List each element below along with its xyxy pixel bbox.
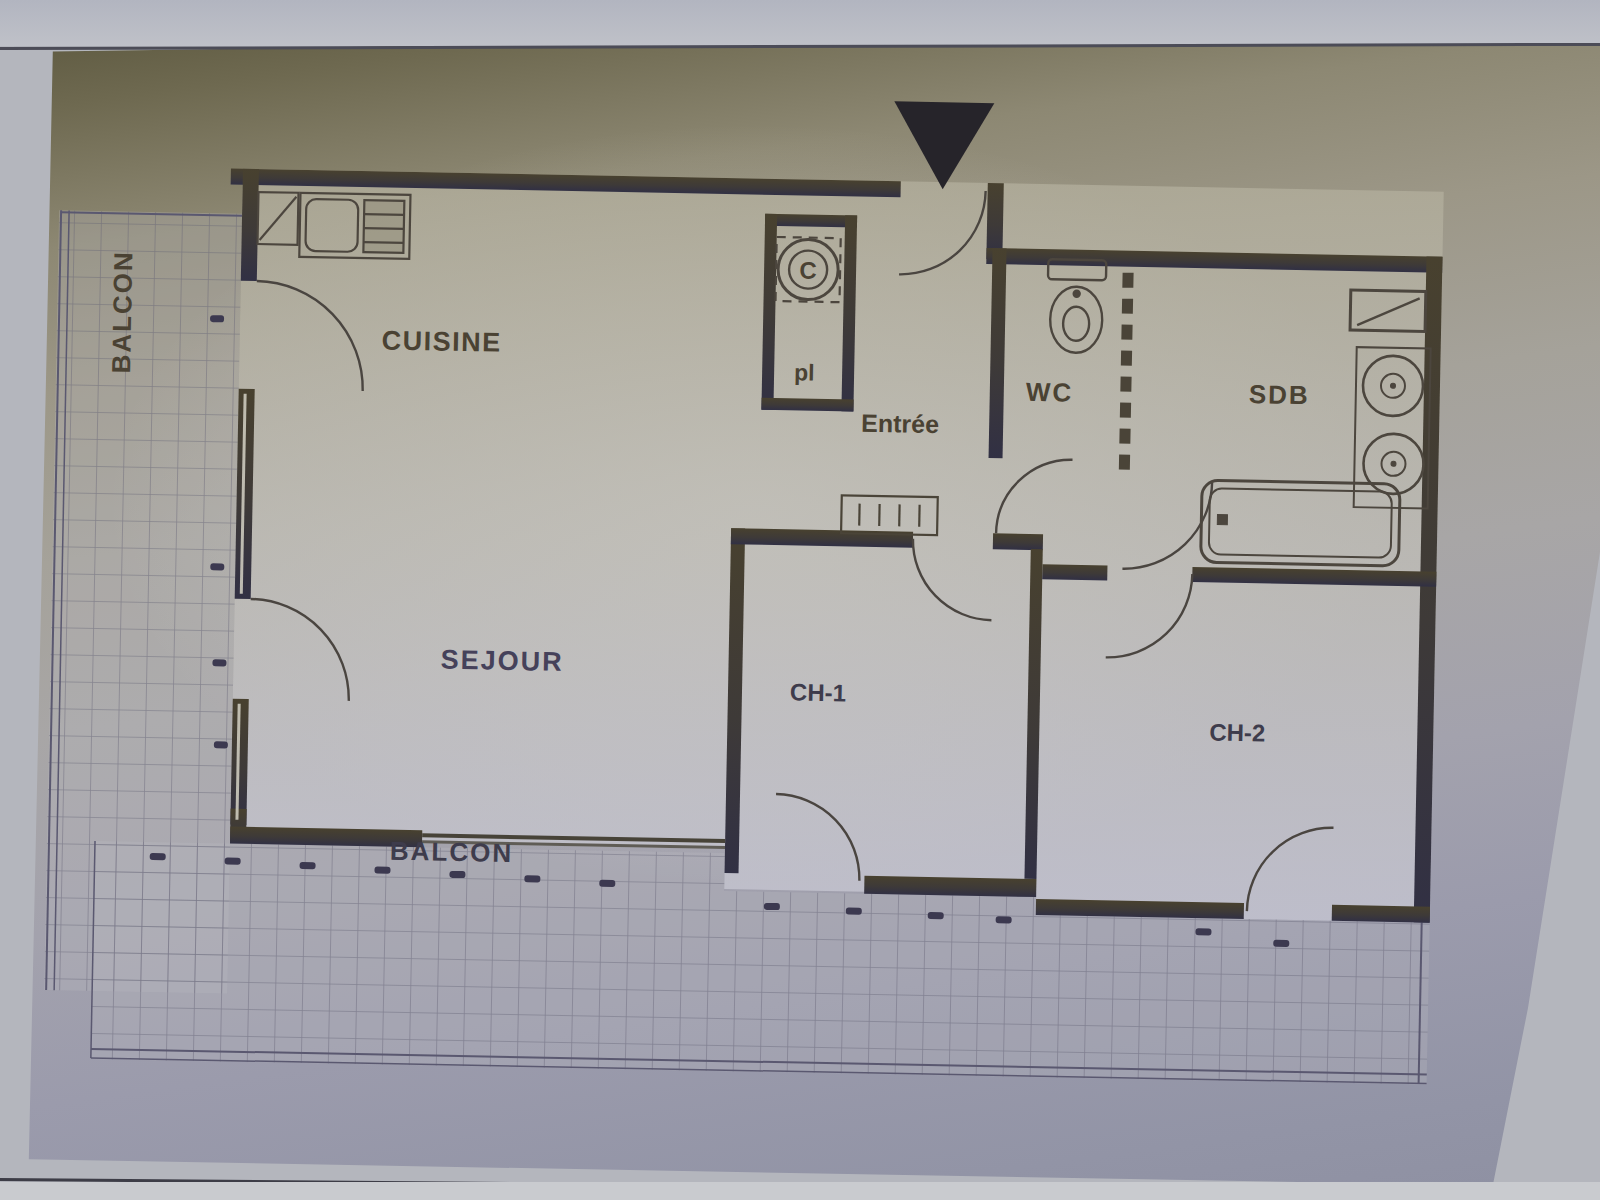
label-cuisine: CUISINE — [381, 325, 502, 357]
label-entree: Entrée — [861, 409, 939, 438]
water-heater-letter: C — [799, 256, 817, 283]
entrance-arrow-icon — [893, 101, 995, 190]
label-ch1: CH-1 — [790, 678, 847, 706]
label-sejour: SEJOUR — [440, 645, 564, 677]
label-balcon-bottom: BALCON — [390, 836, 514, 868]
floor-plan-drawing: C — [30, 60, 1470, 1137]
screen-photo-of-floor-plan: C — [0, 0, 1600, 1200]
label-placard: pl — [794, 359, 815, 385]
label-wc: WC — [1026, 377, 1074, 408]
screen-bottom-band — [0, 1182, 1600, 1200]
kitchen-hob — [363, 200, 404, 253]
label-sdb: SDB — [1249, 379, 1310, 410]
label-balcon-left: BALCON — [106, 250, 138, 374]
label-ch2: CH-2 — [1209, 718, 1266, 746]
screen-top-band — [0, 0, 1600, 46]
